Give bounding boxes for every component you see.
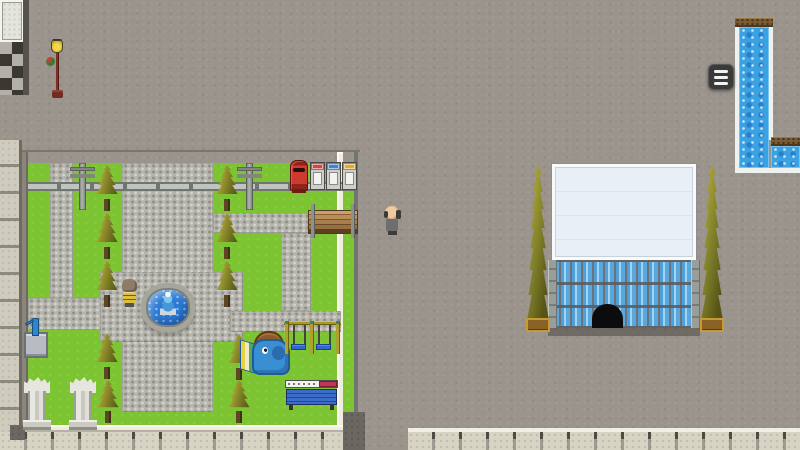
hamburger-menu-icon xyxy=(714,76,728,79)
swing-seat xyxy=(316,344,331,350)
hamburger-menu-icon xyxy=(714,82,728,85)
canal-border-south-east xyxy=(771,168,800,173)
sidewalk-south-west xyxy=(0,432,343,450)
utility-pole-west xyxy=(79,163,86,210)
shop-wall-edge xyxy=(23,0,29,95)
store-glass-windows xyxy=(548,260,700,328)
store-planter-east xyxy=(700,318,724,332)
street-lamp xyxy=(46,40,68,98)
south-road xyxy=(343,412,365,450)
store-tree-east xyxy=(700,164,724,320)
sign-banner xyxy=(285,380,338,388)
sign-banner-red-segment xyxy=(319,381,337,387)
park-sign-bench xyxy=(285,380,338,410)
vending-machine-blue xyxy=(326,162,341,190)
sidewalk-south-east xyxy=(408,428,800,450)
swing-set xyxy=(284,319,341,356)
lamp-head xyxy=(51,40,63,53)
park-tree xyxy=(95,261,119,309)
corridor-fence-east xyxy=(354,152,358,412)
canal-dock-north xyxy=(735,18,773,27)
street-edge-line xyxy=(0,150,360,152)
game-viewport xyxy=(0,0,800,450)
hamburger-menu-icon xyxy=(714,70,728,73)
park-tree xyxy=(215,213,239,261)
canal-border-south xyxy=(735,168,773,173)
npc-child xyxy=(120,279,139,308)
park-tree xyxy=(215,261,239,309)
bench-leg xyxy=(330,404,334,410)
swing-chain xyxy=(293,325,295,346)
marble-column xyxy=(24,377,50,430)
lamp-base xyxy=(52,90,63,98)
postbox xyxy=(290,160,308,191)
fountain-spire xyxy=(160,292,176,315)
park-tree xyxy=(227,380,251,425)
store-shadow xyxy=(548,328,700,336)
player-feet xyxy=(388,231,397,235)
swing-seat xyxy=(291,344,306,350)
vending-machine-yellow xyxy=(342,162,357,190)
bench-leg xyxy=(289,404,293,410)
npc-player xyxy=(382,204,403,237)
wooden-bench xyxy=(308,210,358,234)
swing-chain xyxy=(329,325,331,346)
elephant-eye xyxy=(262,347,268,354)
store-entrance[interactable] xyxy=(592,304,623,328)
swing-post xyxy=(336,321,340,354)
park-tree xyxy=(215,165,239,213)
swing-chain xyxy=(318,325,320,346)
park-path-east-vertical xyxy=(281,233,311,311)
child-legs xyxy=(125,303,134,307)
park-tree xyxy=(95,165,119,213)
player-hair xyxy=(396,210,401,219)
swing-chain xyxy=(304,325,306,346)
park-tree xyxy=(96,380,120,425)
park-tree xyxy=(95,333,119,381)
canal-water-vertical xyxy=(739,27,769,168)
swing-post xyxy=(285,321,289,354)
shop-floor-checker xyxy=(0,42,24,95)
store-roof xyxy=(552,164,696,260)
swing-post xyxy=(310,321,314,354)
store-tree-west xyxy=(526,164,550,320)
canal-dock-east xyxy=(771,137,800,146)
shop-floor-tiles xyxy=(0,0,24,42)
child-hair xyxy=(122,279,137,292)
column-shaft xyxy=(74,391,92,422)
store-planter-west xyxy=(526,318,550,332)
player-hair xyxy=(384,211,388,218)
player-body xyxy=(386,218,398,232)
water-pump xyxy=(24,318,48,358)
lamp-post xyxy=(56,50,59,92)
lamp-flower-basket xyxy=(46,57,55,66)
column-shaft xyxy=(28,391,46,422)
marble-column xyxy=(70,377,96,430)
bench-slats xyxy=(286,389,337,405)
fountain xyxy=(141,283,195,332)
utility-pole-east xyxy=(246,163,253,210)
vending-machine-red xyxy=(310,162,325,190)
canal-water-east xyxy=(771,146,800,168)
park-grass-corridor xyxy=(343,163,354,412)
store-pillar xyxy=(691,260,700,328)
child-shirt xyxy=(123,292,136,303)
menu-button[interactable] xyxy=(708,64,734,90)
park-tree xyxy=(95,213,119,261)
canal-border-east-upper xyxy=(769,24,773,140)
park-sidewalk-west xyxy=(0,140,22,450)
department-store xyxy=(548,164,700,336)
